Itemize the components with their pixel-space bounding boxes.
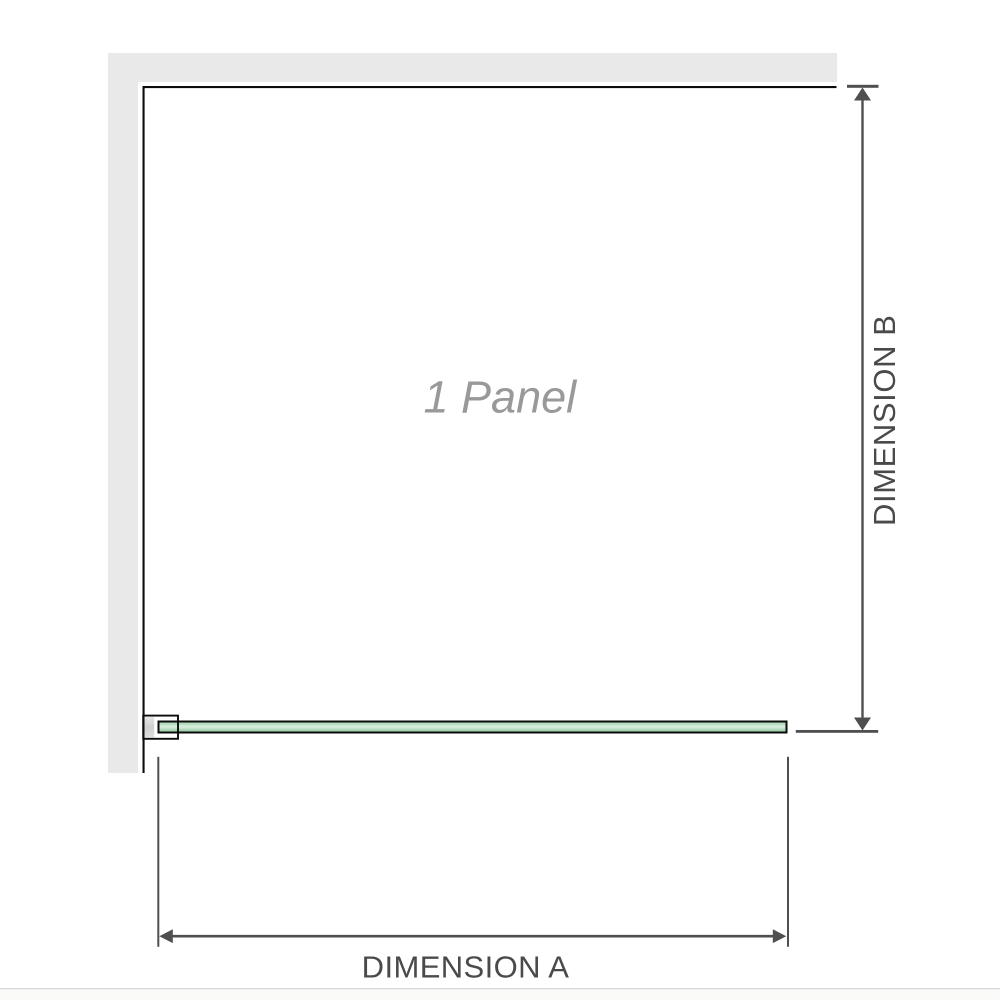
- svg-text:DIMENSION A: DIMENSION A: [362, 950, 570, 985]
- svg-text:1 Panel: 1 Panel: [424, 372, 579, 423]
- svg-text:DIMENSION B: DIMENSION B: [867, 314, 902, 526]
